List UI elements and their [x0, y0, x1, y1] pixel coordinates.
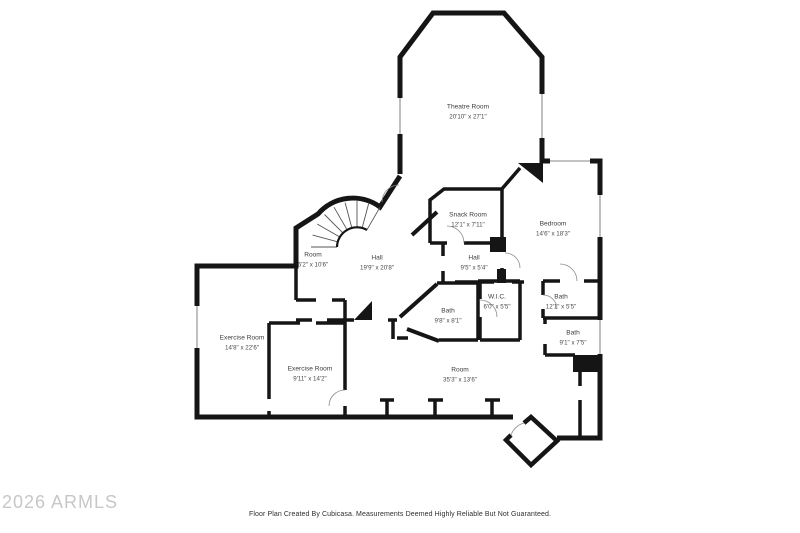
room-dims: 9'5" x 5'4" — [460, 263, 487, 272]
armls-watermark: 2026 ARMLS — [2, 492, 118, 513]
room-label-hall-main: Hall 19'9" x 20'8" — [360, 253, 394, 272]
room-name: Bedroom — [536, 219, 570, 229]
room-name: Exercise Room — [288, 364, 333, 374]
footer-disclaimer: Floor Plan Created By Cubicasa. Measurem… — [0, 511, 800, 518]
room-dims: 6'2" x 10'6" — [298, 260, 329, 269]
room-dims: 20'10" x 27'1" — [447, 112, 489, 121]
room-label-wic: W.I.C. 6'0" x 5'5" — [483, 292, 510, 311]
room-label-bedroom: Bedroom 14'6" x 18'3" — [536, 219, 570, 238]
room-dims: 6'0" x 5'5" — [483, 302, 510, 311]
room-name: Hall — [360, 253, 394, 263]
room-name: Hall — [460, 253, 487, 263]
room-name: Bath — [434, 306, 461, 316]
room-label-exercise-room-small: Exercise Room 9'11" x 14'2" — [288, 364, 333, 383]
room-label-hall-small: Hall 9'5" x 5'4" — [460, 253, 487, 272]
room-name: Room — [298, 250, 329, 260]
room-label-bath-lower-right: Bath 9'1" x 7'5" — [559, 328, 586, 347]
room-name: W.I.C. — [483, 292, 510, 302]
room-label-bath-upper-right: Bath 12'1" x 5'5" — [546, 292, 577, 311]
room-label-theatre-room: Theatre Room 20'10" x 27'1" — [447, 102, 489, 121]
room-dims: 9'1" x 7'5" — [559, 338, 586, 347]
room-dims: 9'8" x 8'1" — [434, 316, 461, 325]
room-name: Bath — [546, 292, 577, 302]
room-name: Theatre Room — [447, 102, 489, 112]
room-label-bath-center: Bath 9'8" x 8'1" — [434, 306, 461, 325]
floor-plan-page: Theatre Room 20'10" x 27'1" Snack Room 1… — [0, 0, 800, 533]
room-dims: 9'11" x 14'2" — [288, 374, 333, 383]
room-dims: 14'8" x 22'6" — [220, 343, 265, 352]
room-dims: 19'9" x 20'8" — [360, 263, 394, 272]
entry-diamond — [506, 417, 557, 465]
room-dims: 12'1" x 5'5" — [546, 302, 577, 311]
room-dims: 35'3" x 13'6" — [443, 375, 477, 384]
room-name: Bath — [559, 328, 586, 338]
room-dims: 12'1" x 7'11" — [449, 220, 487, 229]
room-label-room-small: Room 6'2" x 10'6" — [298, 250, 329, 269]
floor-plan-drawing — [0, 0, 800, 533]
room-name: Exercise Room — [220, 333, 265, 343]
room-label-snack-room: Snack Room 12'1" x 7'11" — [449, 210, 487, 229]
room-label-exercise-room-large: Exercise Room 14'8" x 22'6" — [220, 333, 265, 352]
room-name: Snack Room — [449, 210, 487, 220]
room-label-room-large: Room 35'3" x 13'6" — [443, 365, 477, 384]
room-dims: 14'6" x 18'3" — [536, 229, 570, 238]
room-name: Room — [443, 365, 477, 375]
